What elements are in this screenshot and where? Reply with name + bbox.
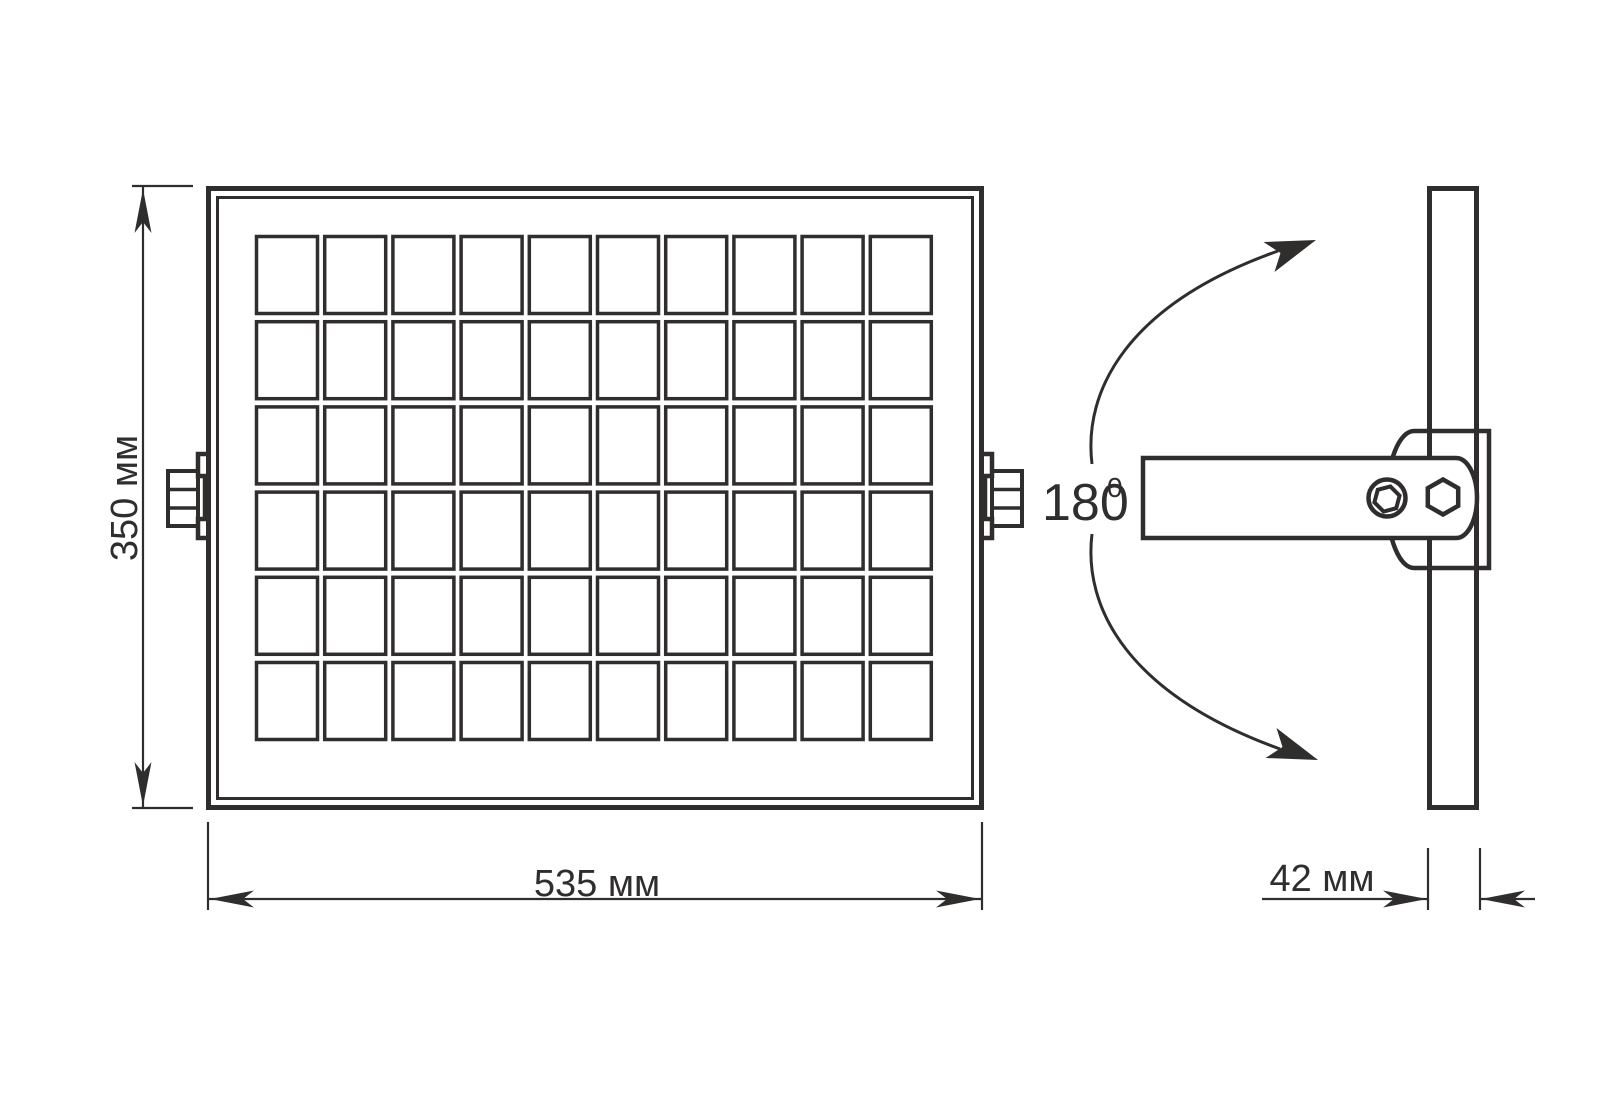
technical-drawing: 350 мм 535 мм 180 0 (0, 0, 1600, 1097)
thickness-dimension: 42 мм (1262, 848, 1535, 910)
height-dimension-label: 350 мм (104, 435, 146, 561)
rotation-angle-superscript: 0 (1107, 472, 1123, 503)
width-dimension: 535 мм (208, 822, 982, 910)
rotation-arc-upper (1091, 251, 1278, 464)
rotation-arrow-lower (1266, 728, 1319, 760)
width-dimension-label: 535 мм (534, 863, 660, 905)
rotation-arc-lower (1091, 534, 1280, 749)
technical-drawing-page: 350 мм 535 мм 180 0 (0, 0, 1600, 1097)
left-mount-nut (168, 471, 198, 526)
thickness-dimension-label: 42 мм (1269, 858, 1374, 900)
rotation-arrow-upper (1264, 240, 1317, 272)
front-view (168, 189, 1022, 808)
side-view (1143, 189, 1489, 808)
right-mount-nut (992, 471, 1022, 526)
